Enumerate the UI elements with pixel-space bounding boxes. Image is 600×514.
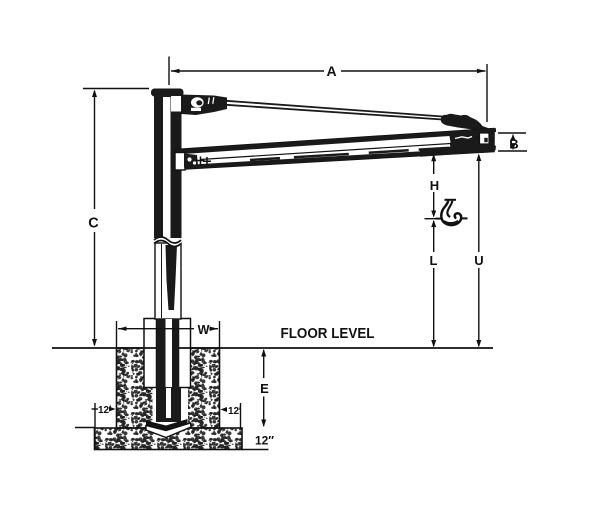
svg-text:12: 12 [98, 405, 110, 416]
svg-text:FLOOR LEVEL: FLOOR LEVEL [281, 325, 375, 342]
svg-text:A: A [326, 63, 336, 79]
svg-text:H: H [430, 178, 439, 193]
svg-text:12″: 12″ [255, 434, 274, 448]
svg-text:C: C [88, 216, 99, 232]
svg-text:12: 12 [228, 406, 240, 417]
svg-text:U: U [474, 253, 483, 268]
svg-text:W: W [198, 323, 210, 337]
svg-text:L: L [430, 253, 438, 268]
svg-text:E: E [260, 381, 269, 396]
svg-text:B: B [509, 137, 518, 152]
